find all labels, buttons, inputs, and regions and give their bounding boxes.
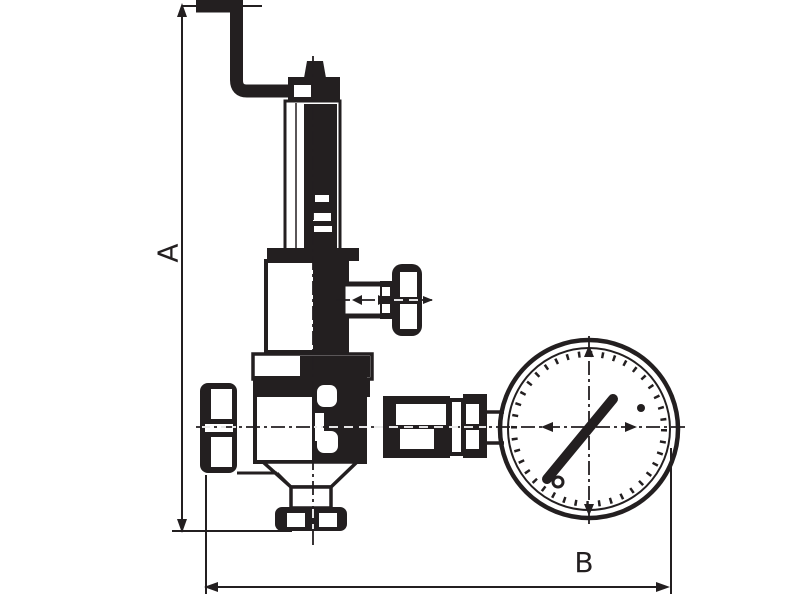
body-port xyxy=(317,431,338,453)
dial-dot xyxy=(637,404,645,412)
cap-nub xyxy=(304,61,326,78)
stem-end-window xyxy=(382,287,390,296)
spring-slit xyxy=(314,226,332,232)
valve-technical-drawing: A B xyxy=(0,0,800,598)
needle-tail-ring xyxy=(553,477,563,487)
valve-masses xyxy=(196,6,487,531)
bonnet-shading xyxy=(313,263,345,351)
flange-window xyxy=(287,513,305,527)
nut-window xyxy=(205,424,233,432)
flange-window xyxy=(319,513,337,527)
spring-slit xyxy=(313,213,331,221)
nut-window xyxy=(211,437,232,467)
hex-window xyxy=(400,429,434,449)
dimension-a-label: A xyxy=(152,243,185,262)
handle-window xyxy=(400,272,417,297)
adapter-window xyxy=(466,404,479,424)
body-port xyxy=(317,385,337,407)
hex-window xyxy=(396,404,446,425)
cap-window xyxy=(294,85,311,97)
handle-window xyxy=(400,304,417,329)
dimension-b-arrow-right xyxy=(656,582,670,592)
nut-window xyxy=(211,389,232,419)
plate-shading xyxy=(300,356,370,377)
outlet-neck xyxy=(291,487,331,508)
relief-rod xyxy=(196,6,303,91)
handle-centerline-arrow xyxy=(423,296,433,304)
dimension-b-label: B xyxy=(574,546,593,579)
adapter-window xyxy=(466,430,479,449)
spring-slit xyxy=(315,195,329,202)
stem-end-window xyxy=(382,304,390,313)
drawing-canvas: A B xyxy=(0,0,800,598)
